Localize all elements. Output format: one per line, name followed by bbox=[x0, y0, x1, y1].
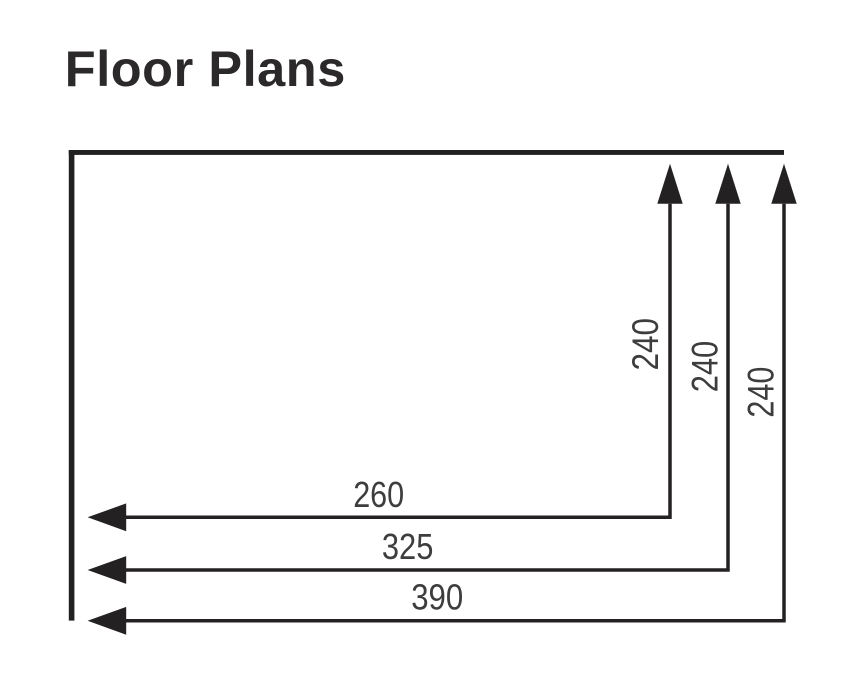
svg-text:390: 390 bbox=[411, 576, 463, 617]
svg-text:325: 325 bbox=[382, 526, 434, 567]
svg-text:Floor Plans: Floor Plans bbox=[65, 40, 346, 97]
svg-text:240: 240 bbox=[624, 318, 666, 371]
svg-text:240: 240 bbox=[684, 341, 726, 393]
svg-text:240: 240 bbox=[740, 367, 782, 418]
svg-text:260: 260 bbox=[353, 474, 404, 515]
